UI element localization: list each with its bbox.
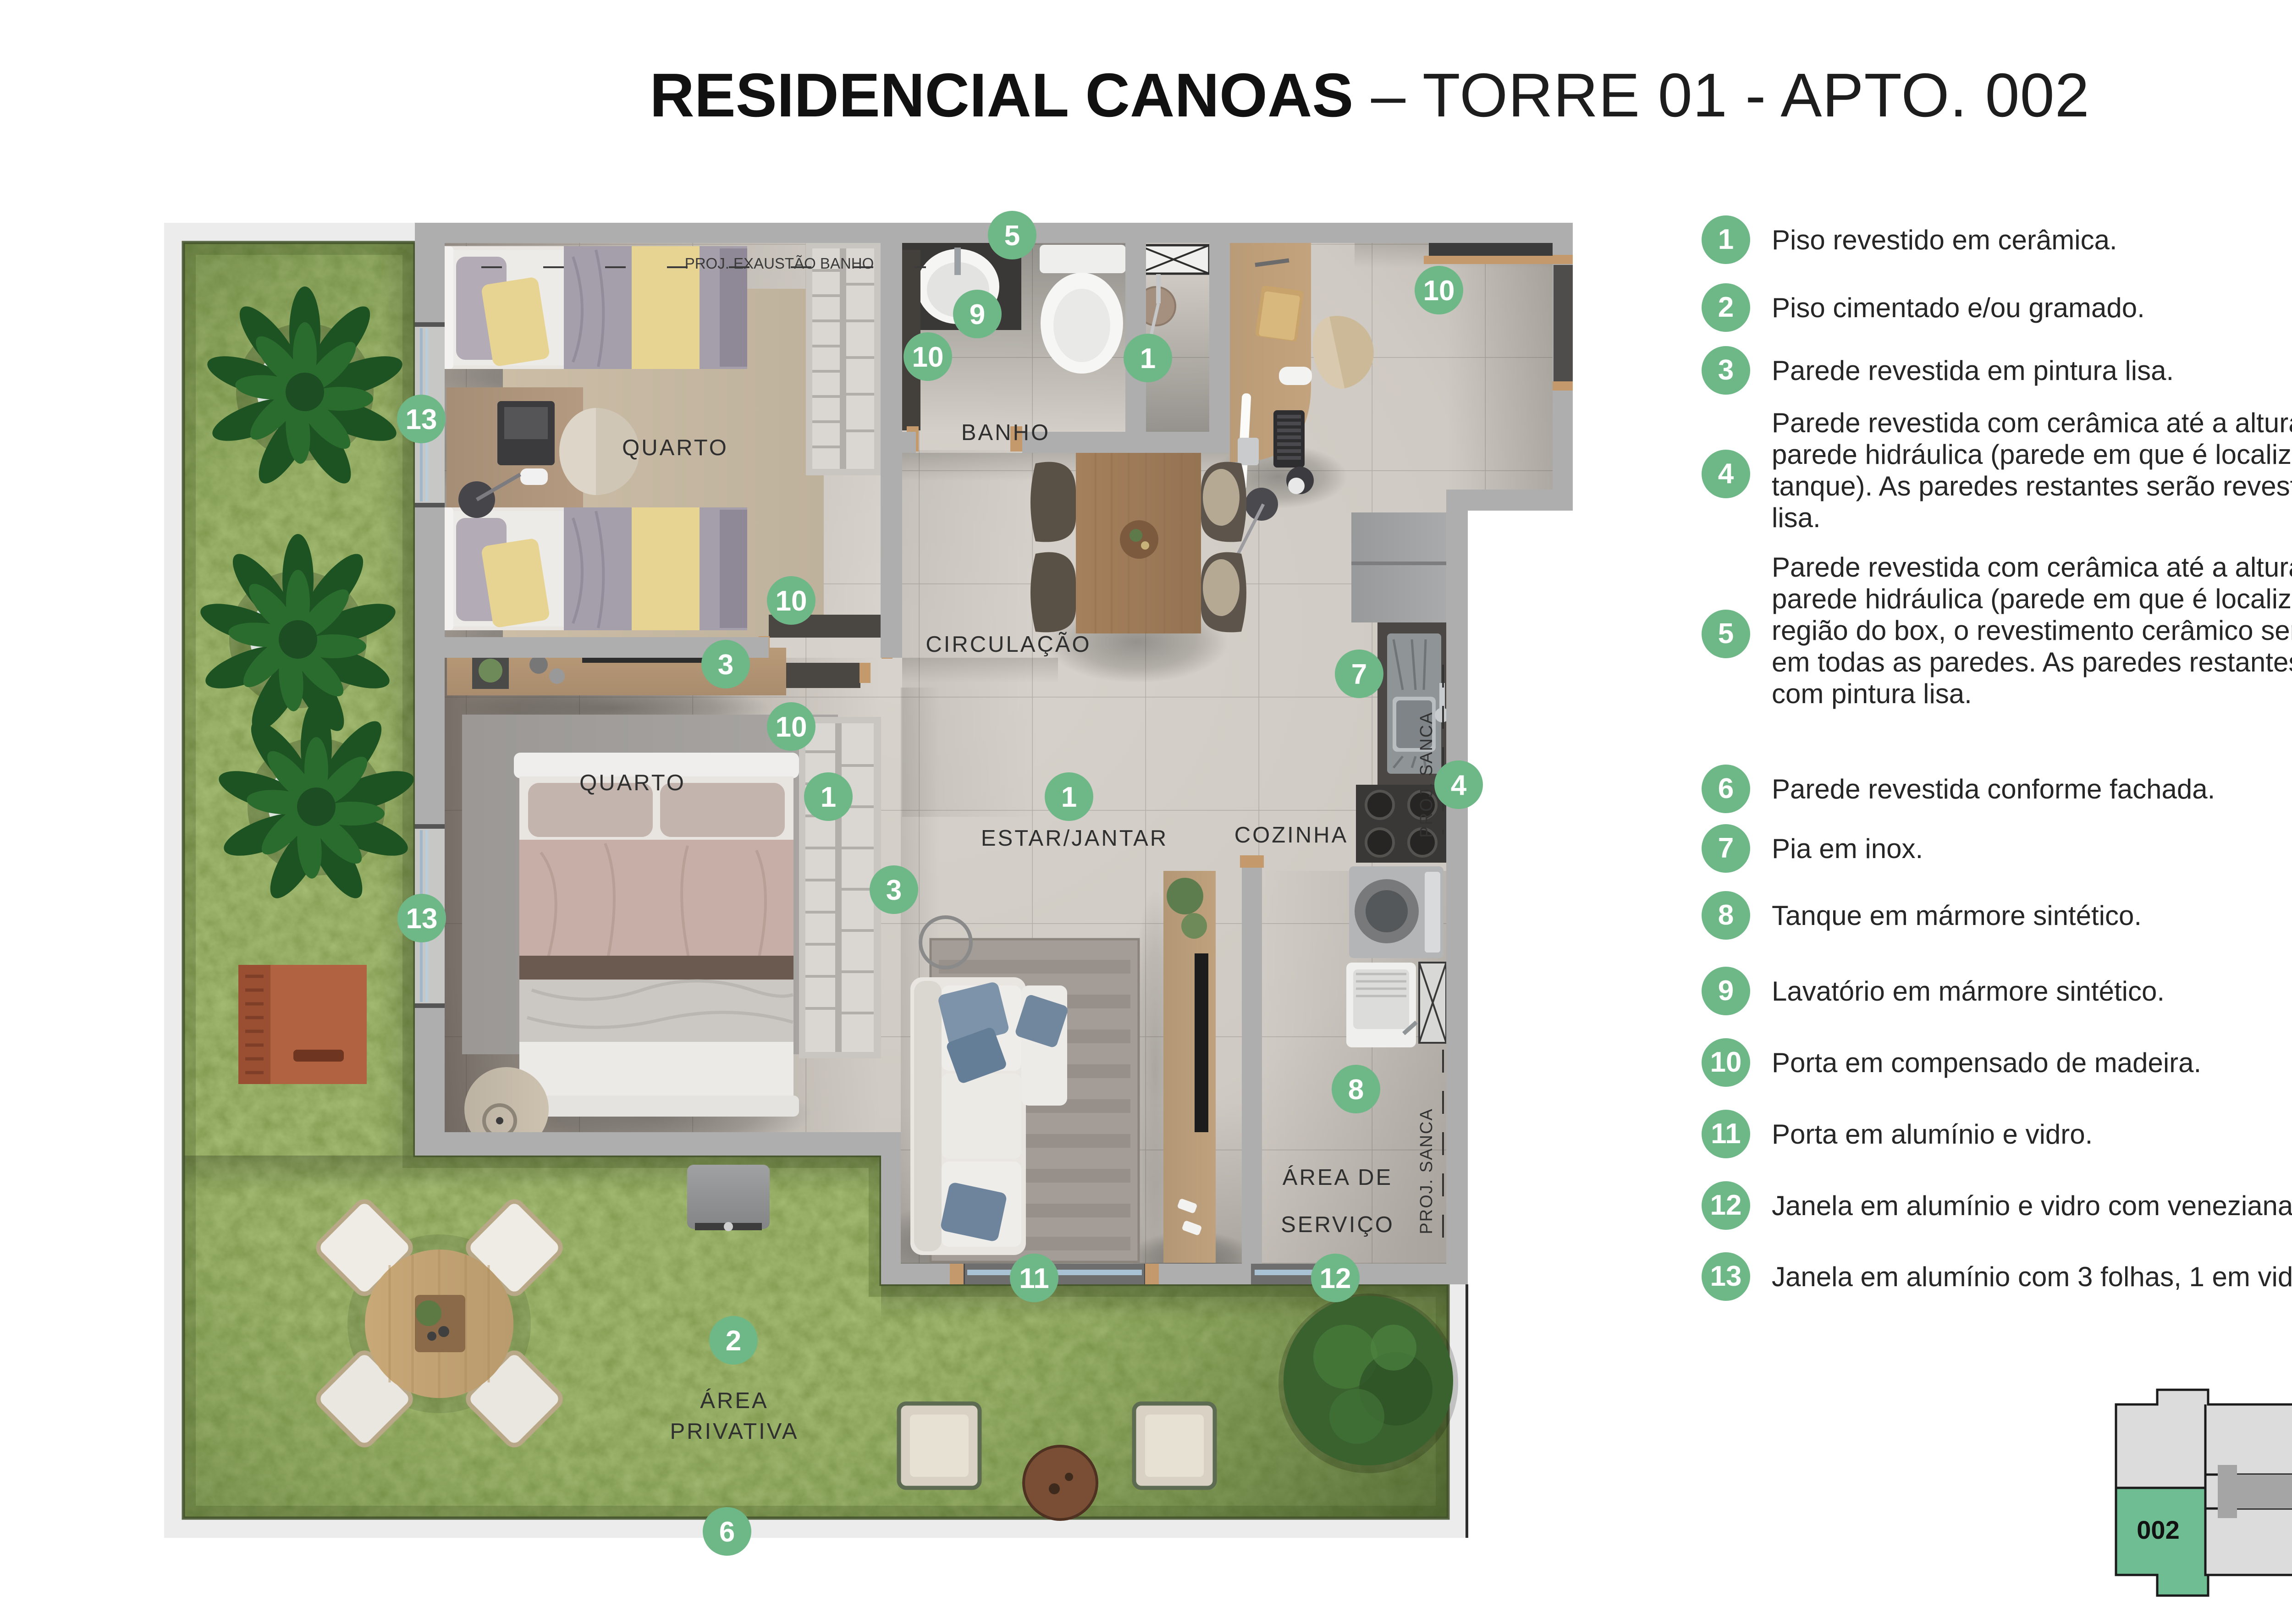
svg-text:10: 10: [1423, 275, 1455, 307]
svg-text:1: 1: [1140, 343, 1156, 374]
svg-text:10: 10: [912, 341, 944, 373]
svg-text:2: 2: [726, 1325, 741, 1357]
svg-text:ÁREA: ÁREA: [700, 1388, 768, 1413]
svg-text:ÁREA DE: ÁREA DE: [1283, 1165, 1393, 1190]
svg-text:SERVIÇO: SERVIÇO: [1281, 1212, 1394, 1237]
svg-text:COZINHA: COZINHA: [1234, 823, 1349, 848]
svg-text:5: 5: [1004, 220, 1020, 252]
svg-text:PROJ. SANCA: PROJ. SANCA: [1417, 1108, 1436, 1234]
svg-text:CIRCULAÇÃO: CIRCULAÇÃO: [926, 632, 1091, 657]
svg-text:1: 1: [1061, 782, 1077, 813]
svg-text:9: 9: [970, 299, 985, 330]
svg-text:PROJ. SANCA: PROJ. SANCA: [1417, 711, 1436, 837]
svg-text:1: 1: [821, 782, 836, 813]
svg-text:QUARTO: QUARTO: [622, 435, 728, 460]
svg-text:12: 12: [1320, 1263, 1351, 1294]
svg-text:13: 13: [406, 404, 437, 435]
svg-text:3: 3: [718, 649, 733, 681]
svg-text:PROJ. EXAUSTÃO BANHO: PROJ. EXAUSTÃO BANHO: [685, 255, 874, 272]
svg-text:PRIVATIVA: PRIVATIVA: [670, 1419, 799, 1444]
svg-text:QUARTO: QUARTO: [579, 771, 686, 795]
svg-text:11: 11: [1019, 1263, 1049, 1294]
svg-text:6: 6: [719, 1516, 735, 1548]
svg-text:13: 13: [406, 903, 438, 935]
svg-text:8: 8: [1348, 1074, 1364, 1106]
svg-text:10: 10: [776, 585, 807, 617]
svg-text:7: 7: [1351, 659, 1367, 690]
svg-text:ESTAR/JANTAR: ESTAR/JANTAR: [981, 826, 1168, 851]
svg-text:3: 3: [886, 875, 902, 906]
svg-text:002: 002: [2137, 1515, 2179, 1544]
svg-text:BANHO: BANHO: [961, 420, 1050, 445]
svg-text:4: 4: [1451, 770, 1467, 801]
svg-text:10: 10: [776, 711, 807, 743]
